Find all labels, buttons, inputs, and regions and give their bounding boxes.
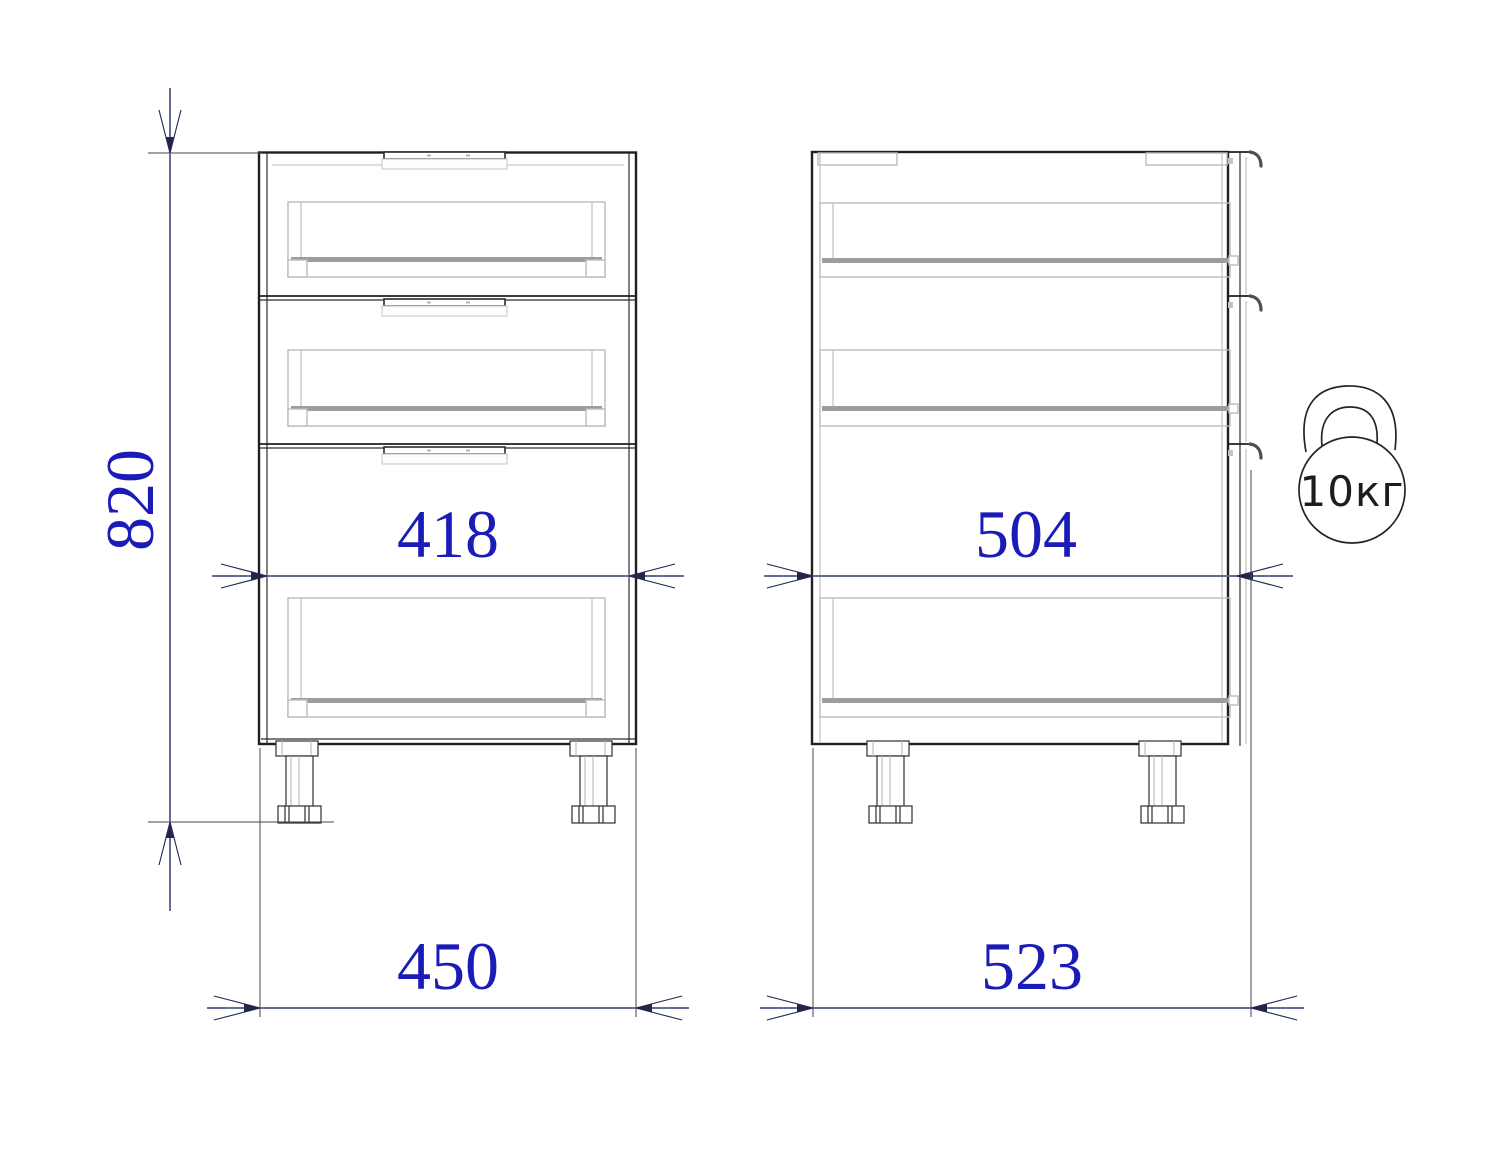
handle-hook-icon	[1250, 444, 1261, 458]
weight-capacity-label: 10кг	[1300, 467, 1405, 516]
front-view	[259, 152, 636, 823]
drawer-front-profile	[1228, 296, 1261, 444]
side-view	[812, 152, 1261, 823]
drawer-front-profile	[1228, 152, 1261, 296]
dimension-overall-width: 450	[207, 748, 689, 1020]
adjustable-leg	[1139, 741, 1184, 823]
dimension-label-inner-width: 418	[397, 496, 499, 572]
technical-drawing-page: 820 418 450 504 523	[0, 0, 1500, 1152]
weight-capacity-badge: 10кг	[1299, 386, 1405, 543]
handle-hook-icon	[1250, 296, 1261, 310]
dimension-label-height: 820	[92, 449, 168, 551]
drawer-handle-notch	[382, 299, 507, 316]
adjustable-leg	[276, 741, 321, 823]
cabinet-drawing-canvas: 820 418 450 504 523	[0, 0, 1500, 1152]
dimension-label-overall-width: 450	[397, 928, 499, 1004]
drawer-handle-notch	[382, 152, 507, 169]
handle-hook-icon	[1250, 152, 1261, 166]
adjustable-leg	[570, 741, 615, 823]
dimension-label-overall-depth: 523	[981, 928, 1083, 1004]
side-carcass-outline	[812, 152, 1228, 744]
drawer-handle-notch	[382, 447, 507, 464]
adjustable-leg	[867, 741, 912, 823]
dimension-label-inner-depth: 504	[975, 496, 1077, 572]
